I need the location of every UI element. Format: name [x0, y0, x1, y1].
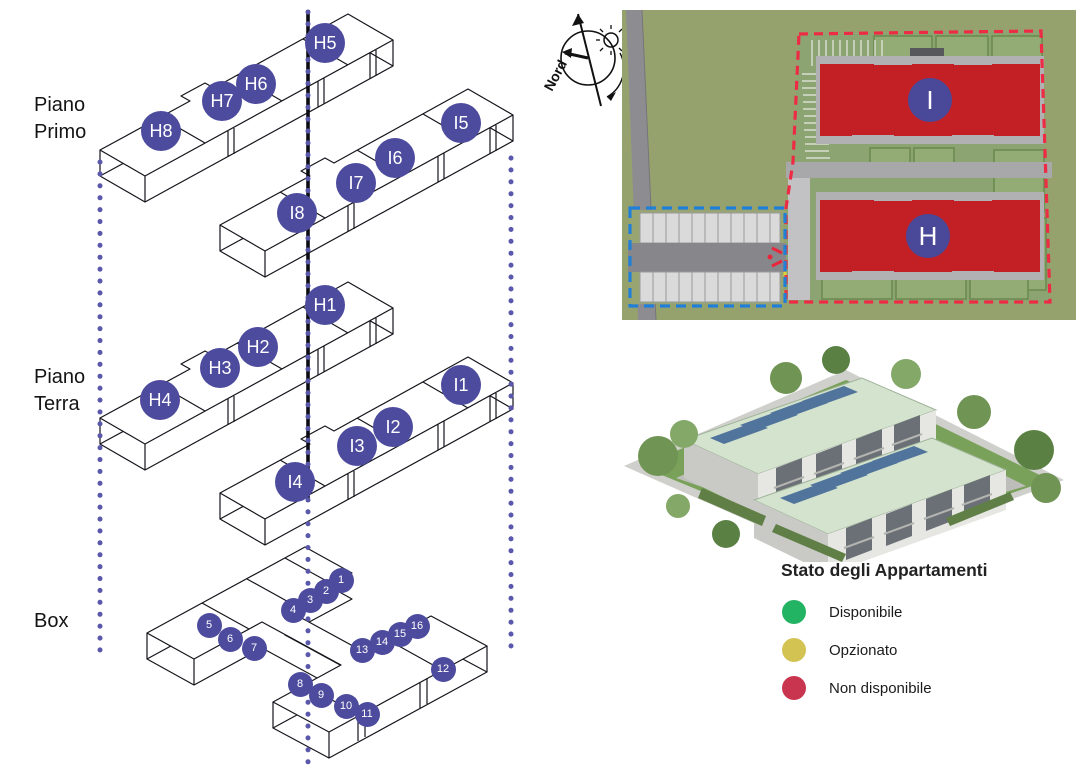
unit-marker-I5[interactable]: I5 — [441, 103, 481, 143]
unit-marker-H1[interactable]: H1 — [305, 285, 345, 325]
unit-marker-I4[interactable]: I4 — [275, 462, 315, 502]
legend-item-unavailable: Non disponibile — [781, 675, 1065, 701]
legend-title: Stato degli Appartamenti — [781, 560, 1065, 581]
unit-marker-9[interactable]: 9 — [309, 683, 334, 708]
unit-marker-H7[interactable]: H7 — [202, 81, 242, 121]
available-swatch-icon — [781, 599, 807, 625]
unit-marker-6[interactable]: 6 — [218, 627, 243, 652]
unit-marker-I3[interactable]: I3 — [337, 426, 377, 466]
buildings-render-image — [606, 338, 1074, 562]
unit-marker-H3[interactable]: H3 — [200, 348, 240, 388]
unit-marker-H5[interactable]: H5 — [305, 23, 345, 63]
unit-marker-H8[interactable]: H8 — [141, 111, 181, 151]
central-path — [786, 162, 1052, 178]
optioned-swatch-icon — [781, 637, 807, 663]
label-piano-terra: Piano Terra — [34, 364, 104, 418]
apartment-selector-page: Piano Primo Piano Terra Box H5H6H7H8I5I6… — [0, 0, 1076, 780]
side-path — [788, 178, 810, 300]
unavailable-swatch-icon — [781, 675, 807, 701]
legend-item-optioned: Opzionato — [781, 637, 1065, 663]
unit-marker-H4[interactable]: H4 — [140, 380, 180, 420]
unit-marker-16[interactable]: 16 — [405, 614, 430, 639]
compass-label: Nord — [541, 57, 570, 93]
legend: Stato degli Appartamenti Disponibile Opz… — [745, 560, 1065, 713]
slab-box-level — [147, 547, 487, 758]
legend-item-available: Disponibile — [781, 599, 1065, 625]
unit-marker-H2[interactable]: H2 — [238, 327, 278, 367]
building-i-plan[interactable]: I — [816, 48, 1044, 144]
label-piano-primo: Piano Primo — [34, 92, 104, 146]
legend-label: Disponibile — [829, 604, 902, 621]
unit-marker-12[interactable]: 12 — [431, 657, 456, 682]
unit-marker-5[interactable]: 5 — [197, 613, 222, 638]
unit-marker-I7[interactable]: I7 — [336, 163, 376, 203]
building-h-plan[interactable]: H — [816, 192, 1044, 280]
label-box: Box — [34, 608, 104, 635]
unit-marker-4[interactable]: 4 — [281, 598, 306, 623]
legend-label: Non disponibile — [829, 680, 932, 697]
site-plan: I H — [622, 10, 1076, 320]
unit-marker-H6[interactable]: H6 — [236, 64, 276, 104]
unit-marker-11[interactable]: 11 — [355, 702, 380, 727]
unit-marker-I8[interactable]: I8 — [277, 193, 317, 233]
building-h-label: H — [919, 221, 938, 251]
garage-area — [628, 210, 786, 304]
unit-marker-I6[interactable]: I6 — [375, 138, 415, 178]
unit-marker-7[interactable]: 7 — [242, 636, 267, 661]
unit-marker-I2[interactable]: I2 — [373, 407, 413, 447]
building-i-label: I — [926, 85, 933, 115]
unit-marker-I1[interactable]: I1 — [441, 365, 481, 405]
legend-label: Opzionato — [829, 642, 897, 659]
